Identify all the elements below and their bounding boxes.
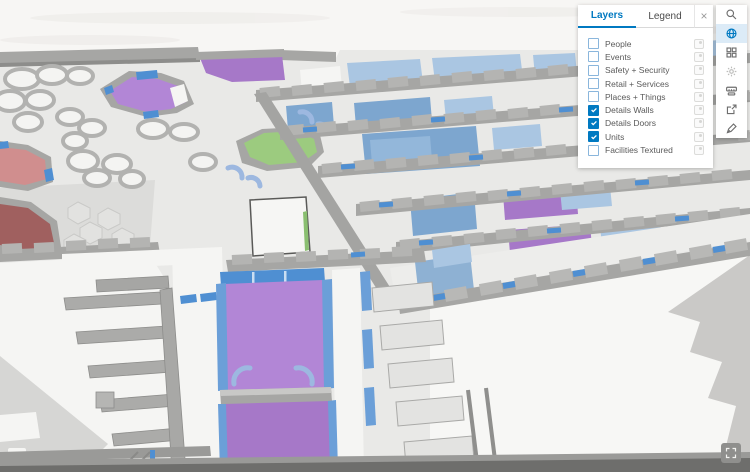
layer-row-retail-services[interactable]: Retail + Services [588, 77, 704, 90]
checkbox-units[interactable] [588, 131, 599, 142]
fullscreen-icon [725, 447, 737, 459]
layers-panel: Layers Legend × People Events Safety + S… [578, 5, 713, 168]
tab-layers-label: Layers [591, 10, 623, 21]
layer-label: People [605, 39, 694, 49]
layer-options-icon[interactable] [694, 92, 704, 102]
checkbox-events[interactable] [588, 51, 599, 62]
layer-label: Details Doors [605, 118, 694, 128]
share-export-icon [725, 103, 738, 116]
layer-row-safety-security[interactable]: Safety + Security [588, 64, 704, 77]
layer-options-icon[interactable] [694, 145, 704, 155]
layer-list: People Events Safety + Security Retail +… [578, 28, 713, 168]
layer-row-details-doors[interactable]: Details Doors [588, 117, 704, 130]
layer-row-units[interactable]: Units [588, 130, 704, 143]
ground-white-patch [0, 412, 40, 442]
layer-options-icon[interactable] [694, 132, 704, 142]
share-button[interactable] [716, 100, 747, 119]
basemap-globe-icon [725, 27, 738, 40]
tab-layers[interactable]: Layers [578, 5, 636, 28]
basemap-button[interactable] [716, 24, 747, 43]
measure-button[interactable] [716, 81, 747, 100]
layer-label: Safety + Security [605, 65, 694, 75]
settings-button[interactable] [716, 62, 747, 81]
layer-row-people[interactable]: People [588, 37, 704, 50]
white-outline-room[interactable] [250, 197, 310, 256]
layer-row-details-walls[interactable]: Details Walls [588, 103, 704, 116]
layer-options-icon[interactable] [694, 79, 704, 89]
app-window: Layers Legend × People Events Safety + S… [0, 0, 750, 472]
checkbox-details-doors[interactable] [588, 118, 599, 129]
panel-tabs: Layers Legend × [578, 5, 713, 28]
search-icon [725, 8, 738, 21]
checkbox-facilities-textured[interactable] [588, 145, 599, 156]
sketch-pen-icon [725, 122, 738, 135]
checkbox-retail-services[interactable] [588, 78, 599, 89]
layer-label: Places + Things [605, 92, 694, 102]
measure-icon [725, 84, 738, 97]
layer-options-icon[interactable] [694, 52, 704, 62]
apps-button[interactable] [716, 43, 747, 62]
map-toolbar [716, 5, 747, 138]
layer-options-icon[interactable] [694, 105, 704, 115]
layer-label: Retail + Services [605, 79, 694, 89]
checkbox-people[interactable] [588, 38, 599, 49]
layer-row-facilities-textured[interactable]: Facilities Textured [588, 143, 704, 156]
layer-label: Details Walls [605, 105, 694, 115]
sketch-button[interactable] [716, 119, 747, 138]
checkbox-details-walls[interactable] [588, 105, 599, 116]
apps-grid-icon [725, 46, 738, 59]
layer-row-events[interactable]: Events [588, 50, 704, 63]
fullscreen-button[interactable] [721, 443, 741, 463]
checkbox-places-things[interactable] [588, 91, 599, 102]
layer-options-icon[interactable] [694, 65, 704, 75]
close-icon[interactable]: × [694, 5, 713, 28]
checkbox-safety-security[interactable] [588, 65, 599, 76]
central-purple-room-upper[interactable] [216, 268, 334, 392]
layer-label: Units [605, 132, 694, 142]
settings-gear-icon [725, 65, 738, 78]
layer-label: Events [605, 52, 694, 62]
tab-legend-label: Legend [648, 11, 681, 22]
layer-options-icon[interactable] [694, 118, 704, 128]
layer-row-places-things[interactable]: Places + Things [588, 90, 704, 103]
layer-options-icon[interactable] [694, 39, 704, 49]
layer-label: Facilities Textured [605, 145, 694, 155]
tab-legend[interactable]: Legend [636, 5, 694, 28]
search-button[interactable] [716, 5, 747, 24]
